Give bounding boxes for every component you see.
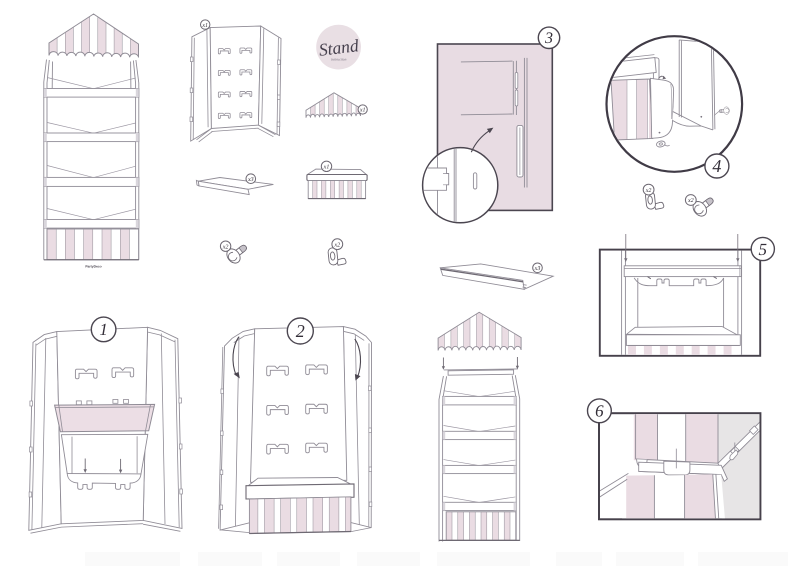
svg-text:4: 4 (712, 156, 721, 176)
svg-text:x2: x2 (333, 242, 340, 248)
svg-text:1: 1 (99, 320, 108, 339)
svg-text:x3: x3 (247, 177, 254, 183)
svg-text:x2: x2 (222, 244, 229, 250)
svg-text:x2: x2 (645, 188, 652, 194)
svg-text:x2: x2 (687, 198, 694, 204)
svg-text:x1: x1 (359, 108, 366, 114)
svg-text:x1: x1 (201, 23, 208, 29)
svg-text:x3: x3 (534, 266, 541, 272)
svg-text:6: 6 (595, 402, 604, 421)
svg-text:5: 5 (759, 240, 768, 259)
svg-text:PartyDeco: PartyDeco (85, 265, 101, 269)
svg-text:3: 3 (544, 30, 553, 47)
svg-text:2: 2 (296, 321, 305, 341)
svg-text:x1: x1 (323, 165, 330, 171)
svg-text:instruction: instruction (331, 58, 347, 62)
